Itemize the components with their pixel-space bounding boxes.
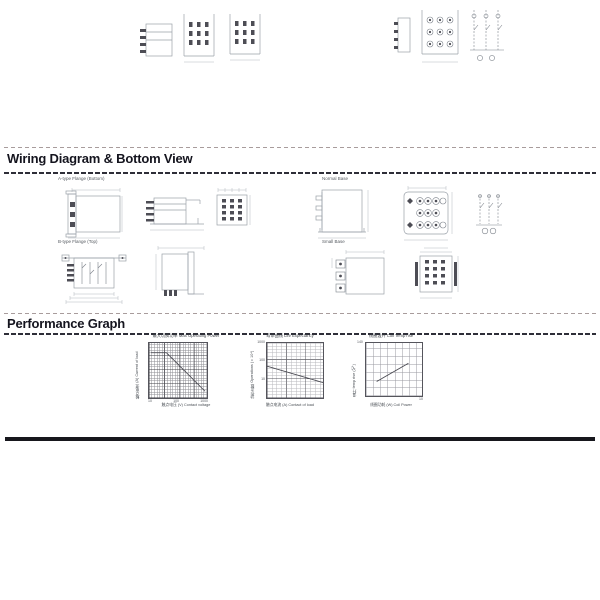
graph1-x-axis-label: 触点电压 (V) Contact voltage (133, 404, 239, 408)
small-base-side-view-drawing (328, 248, 388, 298)
relay-side-view-flange-bottom-drawing (142, 192, 208, 234)
graph1-title: 最大切换功率 Max Operating Power (133, 334, 239, 338)
section-rule-top-2 (4, 313, 596, 314)
normal-base-bottom-view-round-pins-drawing (396, 184, 456, 242)
graph3-x-axis-label: 线圈功耗 (W) Coil Power (352, 404, 430, 408)
graph2-title: 寿命曲线 Life Expectancy (250, 334, 330, 338)
datasheet-page: Wiring Diagram & Bottom View A-type Flan… (0, 0, 600, 600)
graph2-x-axis-label: 触点电流 (A) Contact of load (250, 404, 330, 408)
relay-side-view-flange-top-drawing (146, 244, 208, 300)
wiring-schematic-drawing (472, 192, 506, 236)
graph3-curve (366, 343, 422, 396)
relay-front-view-flange-bottom-drawing (58, 186, 124, 240)
section-title-performance: Performance Graph (7, 316, 125, 331)
graph-coil-temp-rise: 线圈温升 Coil Temp rise 温升 temp rise (℃) 140… (352, 334, 430, 410)
page-bottom-bar (5, 437, 595, 441)
partial-top-left-drawings (138, 14, 264, 66)
graph2-plot-area (266, 342, 324, 399)
graph1-plot-area (148, 342, 208, 399)
label-normal-base: Normal Base (322, 177, 348, 182)
graph3-plot-area (365, 342, 423, 397)
graph3-title: 线圈温升 Coil Temp rise (352, 334, 430, 338)
label-flange-bottom: A-type Flange (Bottom) (58, 177, 105, 182)
label-small-base: Small Base (322, 240, 345, 245)
small-base-bottom-view-drawing (410, 246, 460, 302)
graph2-y-ticks: 1000 100 10 (257, 341, 265, 381)
graph-max-operating-power: 最大切换功率 Max Operating Power 触点电流 (A) Curr… (133, 334, 239, 410)
graph3-y-tick-top: 140 (357, 341, 363, 345)
partial-top-right-drawings (392, 10, 508, 68)
graph3-y-axis-label: 温升 temp rise (℃) (353, 342, 357, 397)
section-title-wiring: Wiring Diagram & Bottom View (7, 151, 192, 166)
graph1-curve (149, 343, 207, 398)
label-flange-top: B-type Flange (Top) (58, 240, 98, 245)
relay-front-view-flange-top-drawing (60, 248, 128, 306)
section-rule-top-1 (4, 147, 596, 148)
graph2-y-axis-label: 动作次数 Operations (×10⁴) (251, 342, 255, 399)
graph-life-expectancy: 寿命曲线 Life Expectancy 动作次数 Operations (×1… (250, 334, 330, 410)
graph3-x-tick-right: 10 (419, 398, 423, 402)
section-rule-under-1 (4, 172, 596, 174)
graph1-y-axis-label: 触点电流 (A) Current of load (136, 342, 140, 399)
relay-bottom-view-flat-pins-drawing (212, 188, 252, 230)
normal-base-side-view-drawing (306, 184, 372, 240)
graph2-curve (267, 343, 323, 398)
